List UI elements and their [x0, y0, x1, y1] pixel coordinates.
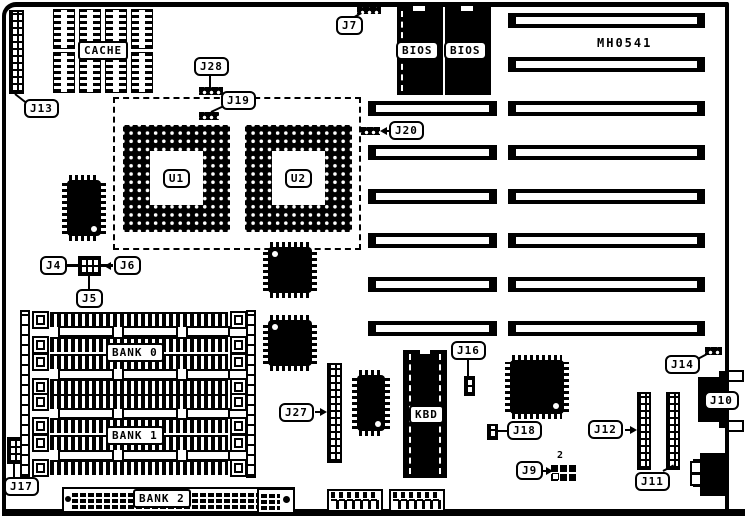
qfp-chip [263, 315, 317, 371]
port-tab [719, 421, 727, 428]
j10-label: J10 [704, 391, 739, 410]
port-tab [719, 371, 727, 378]
ic-chip [352, 370, 390, 436]
j19-label: J19 [221, 91, 256, 110]
expansion-slot [508, 13, 705, 28]
j5-pointer [88, 276, 90, 290]
bottom-connector [327, 489, 383, 512]
j27-header [327, 363, 342, 463]
expansion-slot-ext [368, 321, 497, 336]
expansion-slot-ext [368, 145, 497, 160]
j4-label: J4 [40, 256, 67, 275]
simm-clip [32, 459, 49, 477]
port-tab-out [727, 420, 744, 432]
simm-socket [50, 312, 228, 327]
expansion-slot-ext [368, 101, 497, 116]
simm-clip [32, 311, 49, 329]
socket-outline [186, 369, 230, 380]
simm-clip [230, 459, 247, 477]
j11-header [666, 392, 680, 470]
j12-label: J12 [588, 420, 623, 439]
j9-open-pin [552, 473, 559, 480]
simm-clip [32, 353, 49, 371]
bios-label-1: BIOS [396, 41, 439, 60]
socket-outline [122, 369, 178, 380]
simm-clip [32, 336, 49, 354]
simm-clip [230, 311, 247, 329]
j9-jumper-grid [551, 463, 577, 481]
j28-jumper [199, 87, 223, 95]
bank0-label: BANK 0 [106, 343, 164, 362]
j12-arrow [630, 426, 637, 434]
qfp-chip [263, 242, 317, 298]
power-connector [257, 488, 295, 514]
j13-header [9, 10, 24, 94]
board-id: MH0541 [597, 36, 652, 50]
simm-clip [32, 434, 49, 452]
j9-pin2-label: 2 [557, 450, 563, 461]
connector-tab [690, 473, 702, 486]
bank1-label: BANK 1 [106, 426, 164, 445]
bottom-connector [389, 489, 445, 512]
expansion-slot [508, 101, 705, 116]
bank2-hole [65, 496, 71, 502]
socket-outline [186, 450, 230, 461]
kbd-label: KBD [409, 405, 444, 424]
socket-outline [58, 326, 114, 337]
ic-chip [62, 175, 106, 241]
expansion-slot-ext [368, 233, 497, 248]
j6-arrow [104, 262, 111, 270]
simm-clip [230, 393, 247, 411]
port-tab-out [727, 370, 744, 382]
simm-rail-right [246, 310, 256, 478]
expansion-slot-ext [368, 189, 497, 204]
j17-header [7, 437, 22, 464]
simm-socket [50, 379, 228, 394]
j20-jumper [361, 127, 380, 135]
j9-arrow [546, 467, 553, 475]
j17-label: J17 [4, 477, 39, 496]
j12-header [637, 392, 651, 470]
connector-hole [283, 496, 290, 503]
cache-chip [131, 9, 153, 49]
u2-well: U2 [272, 151, 325, 205]
j16-pointer [467, 360, 469, 376]
j28-pointer [209, 76, 211, 87]
simm-clip [230, 417, 247, 435]
connector-pin-grid [261, 492, 280, 510]
chip-notch [420, 349, 430, 354]
bank2-label: BANK 2 [133, 489, 191, 508]
j20-label: J20 [389, 121, 424, 140]
expansion-slot [508, 233, 705, 248]
bios-label-2: BIOS [444, 41, 487, 60]
j14-jumper [705, 347, 722, 355]
simm-socket [50, 460, 228, 475]
simm-clip [230, 353, 247, 371]
simm-clip [32, 393, 49, 411]
ic-chip [505, 355, 569, 419]
j27-arrow [320, 408, 327, 416]
edge-connector [700, 453, 727, 496]
j13-label: J13 [24, 99, 59, 118]
j14-label: J14 [665, 355, 700, 374]
j18-connector [487, 424, 498, 440]
u1-socket: U1 [123, 125, 230, 232]
j16-jumper [464, 376, 475, 396]
j16-label: J16 [451, 341, 486, 360]
socket-outline [122, 326, 178, 337]
socket-outline [186, 326, 230, 337]
j27-label: J27 [279, 403, 314, 422]
expansion-slot [508, 277, 705, 292]
socket-outline [122, 450, 178, 461]
u2-label: U2 [285, 169, 312, 188]
j28-label: J28 [194, 57, 229, 76]
j4-pointer [66, 264, 78, 267]
simm-clip [230, 434, 247, 452]
cache-chip [53, 52, 75, 93]
j5-label: J5 [76, 289, 103, 308]
socket-outline [122, 408, 178, 419]
motherboard-diagram: J13 CACHE J7 BIOS BIOS MH0541 J28 J19 J2… [0, 0, 747, 520]
expansion-slot [508, 321, 705, 336]
expansion-slot [508, 189, 705, 204]
chip-notch [413, 6, 425, 11]
chip-notch [461, 6, 473, 11]
j17-pointer [13, 464, 15, 477]
socket-outline [58, 450, 114, 461]
j18-label: J18 [507, 421, 542, 440]
cache-chip [53, 9, 75, 49]
j9-label: J9 [516, 461, 543, 480]
j11-label: J11 [635, 472, 670, 491]
u2-socket: U2 [245, 125, 352, 232]
expansion-slot-ext [368, 277, 497, 292]
j7-label: J7 [336, 16, 363, 35]
simm-clip [32, 417, 49, 435]
socket-outline [58, 408, 114, 419]
j6-label: J6 [114, 256, 141, 275]
cache-label: CACHE [78, 41, 128, 60]
expansion-slot [508, 57, 705, 72]
simm-socket [50, 394, 228, 409]
j4-j6-jumper-block [78, 256, 101, 276]
simm-clip [230, 336, 247, 354]
expansion-slot [508, 145, 705, 160]
u1-well: U1 [150, 151, 203, 205]
u1-label: U1 [163, 169, 190, 188]
cache-chip [131, 52, 153, 93]
socket-outline [186, 408, 230, 419]
socket-outline [58, 369, 114, 380]
